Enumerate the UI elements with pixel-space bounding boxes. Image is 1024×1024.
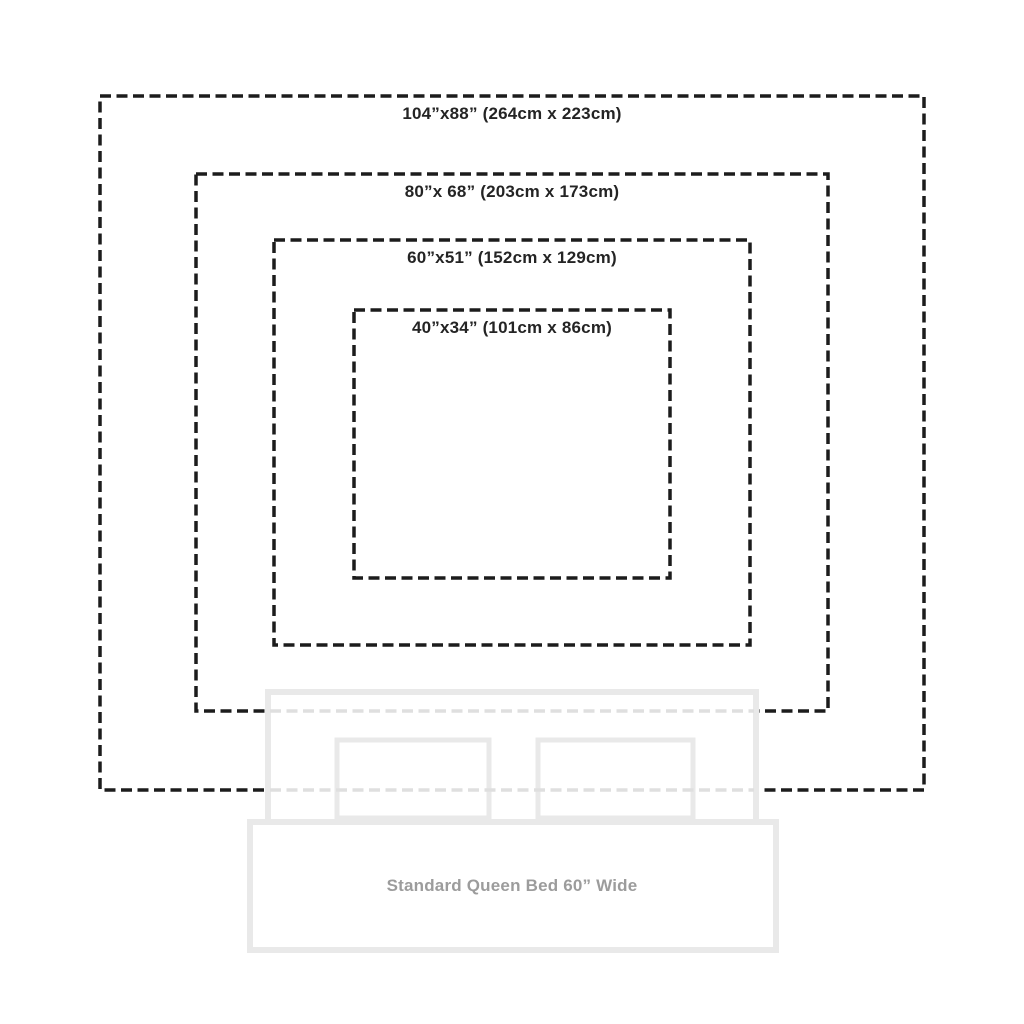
- bed-pillow-right: [538, 740, 693, 818]
- size-chart-diagram: 104”x88” (264cm x 223cm) 80”x 68” (203cm…: [0, 0, 1024, 1024]
- size-outline-60x51: [274, 240, 750, 645]
- size-label-40x34: 40”x34” (101cm x 86cm): [0, 317, 1024, 339]
- bed-label: Standard Queen Bed 60” Wide: [0, 875, 1024, 897]
- bed-pillow-left: [337, 740, 489, 818]
- size-label-60x51: 60”x51” (152cm x 129cm): [0, 247, 1024, 269]
- diagram-canvas: [0, 0, 1024, 1024]
- size-label-80x68: 80”x 68” (203cm x 173cm): [0, 181, 1024, 203]
- size-outline-40x34: [354, 310, 670, 578]
- size-label-104x88: 104”x88” (264cm x 223cm): [0, 103, 1024, 125]
